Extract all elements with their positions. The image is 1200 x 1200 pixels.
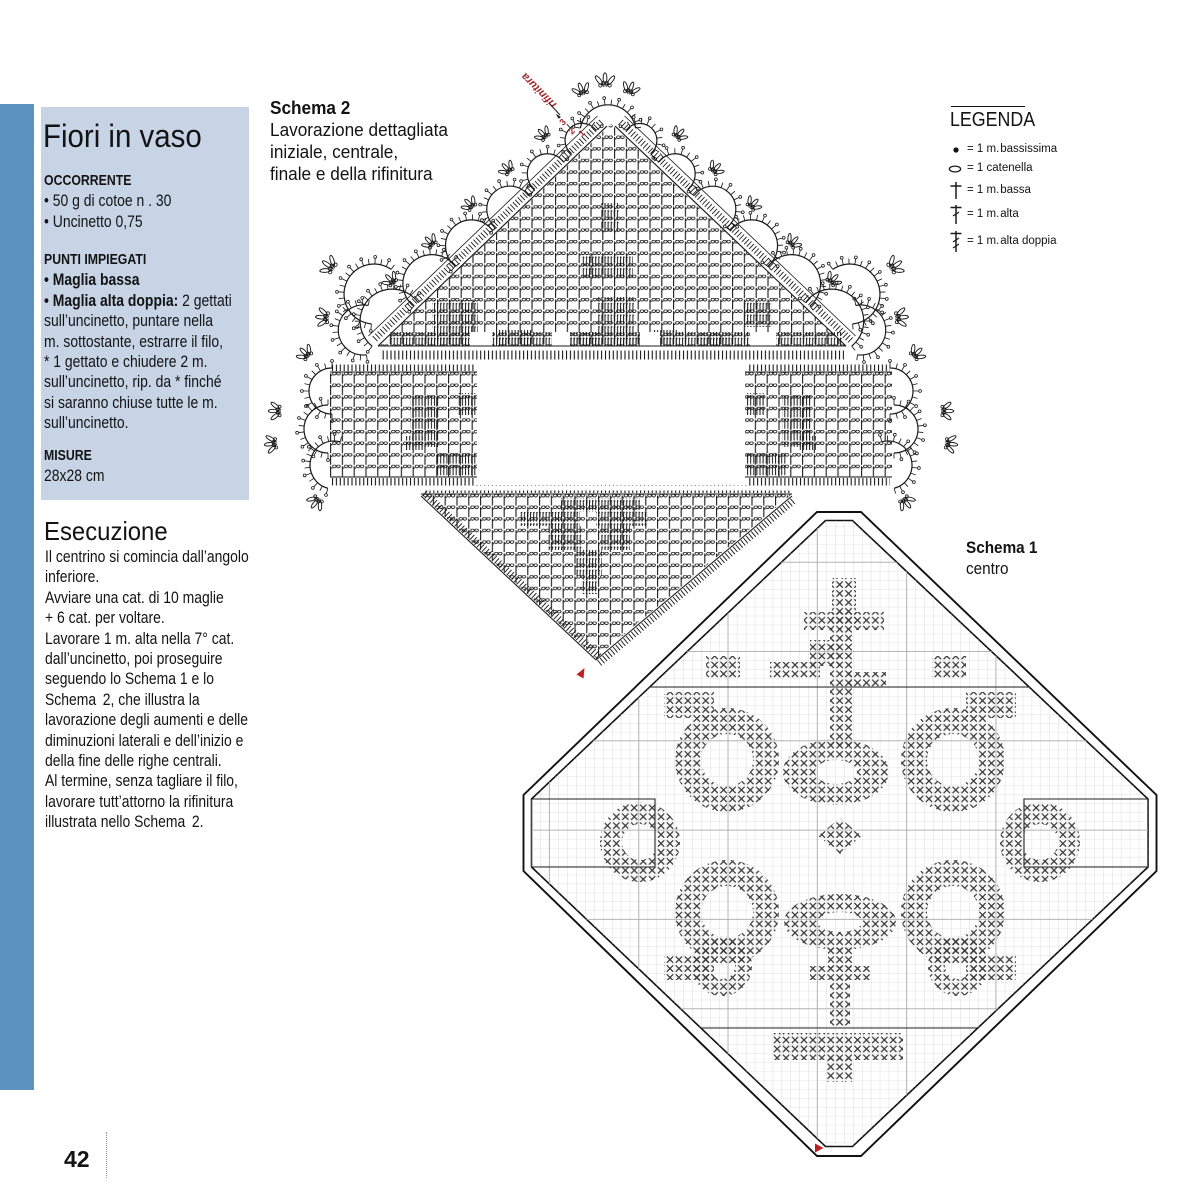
- svg-text:3: 3: [557, 117, 568, 128]
- svg-text:1: 1: [576, 128, 587, 139]
- svg-text:rifinitura: rifinitura: [519, 70, 559, 110]
